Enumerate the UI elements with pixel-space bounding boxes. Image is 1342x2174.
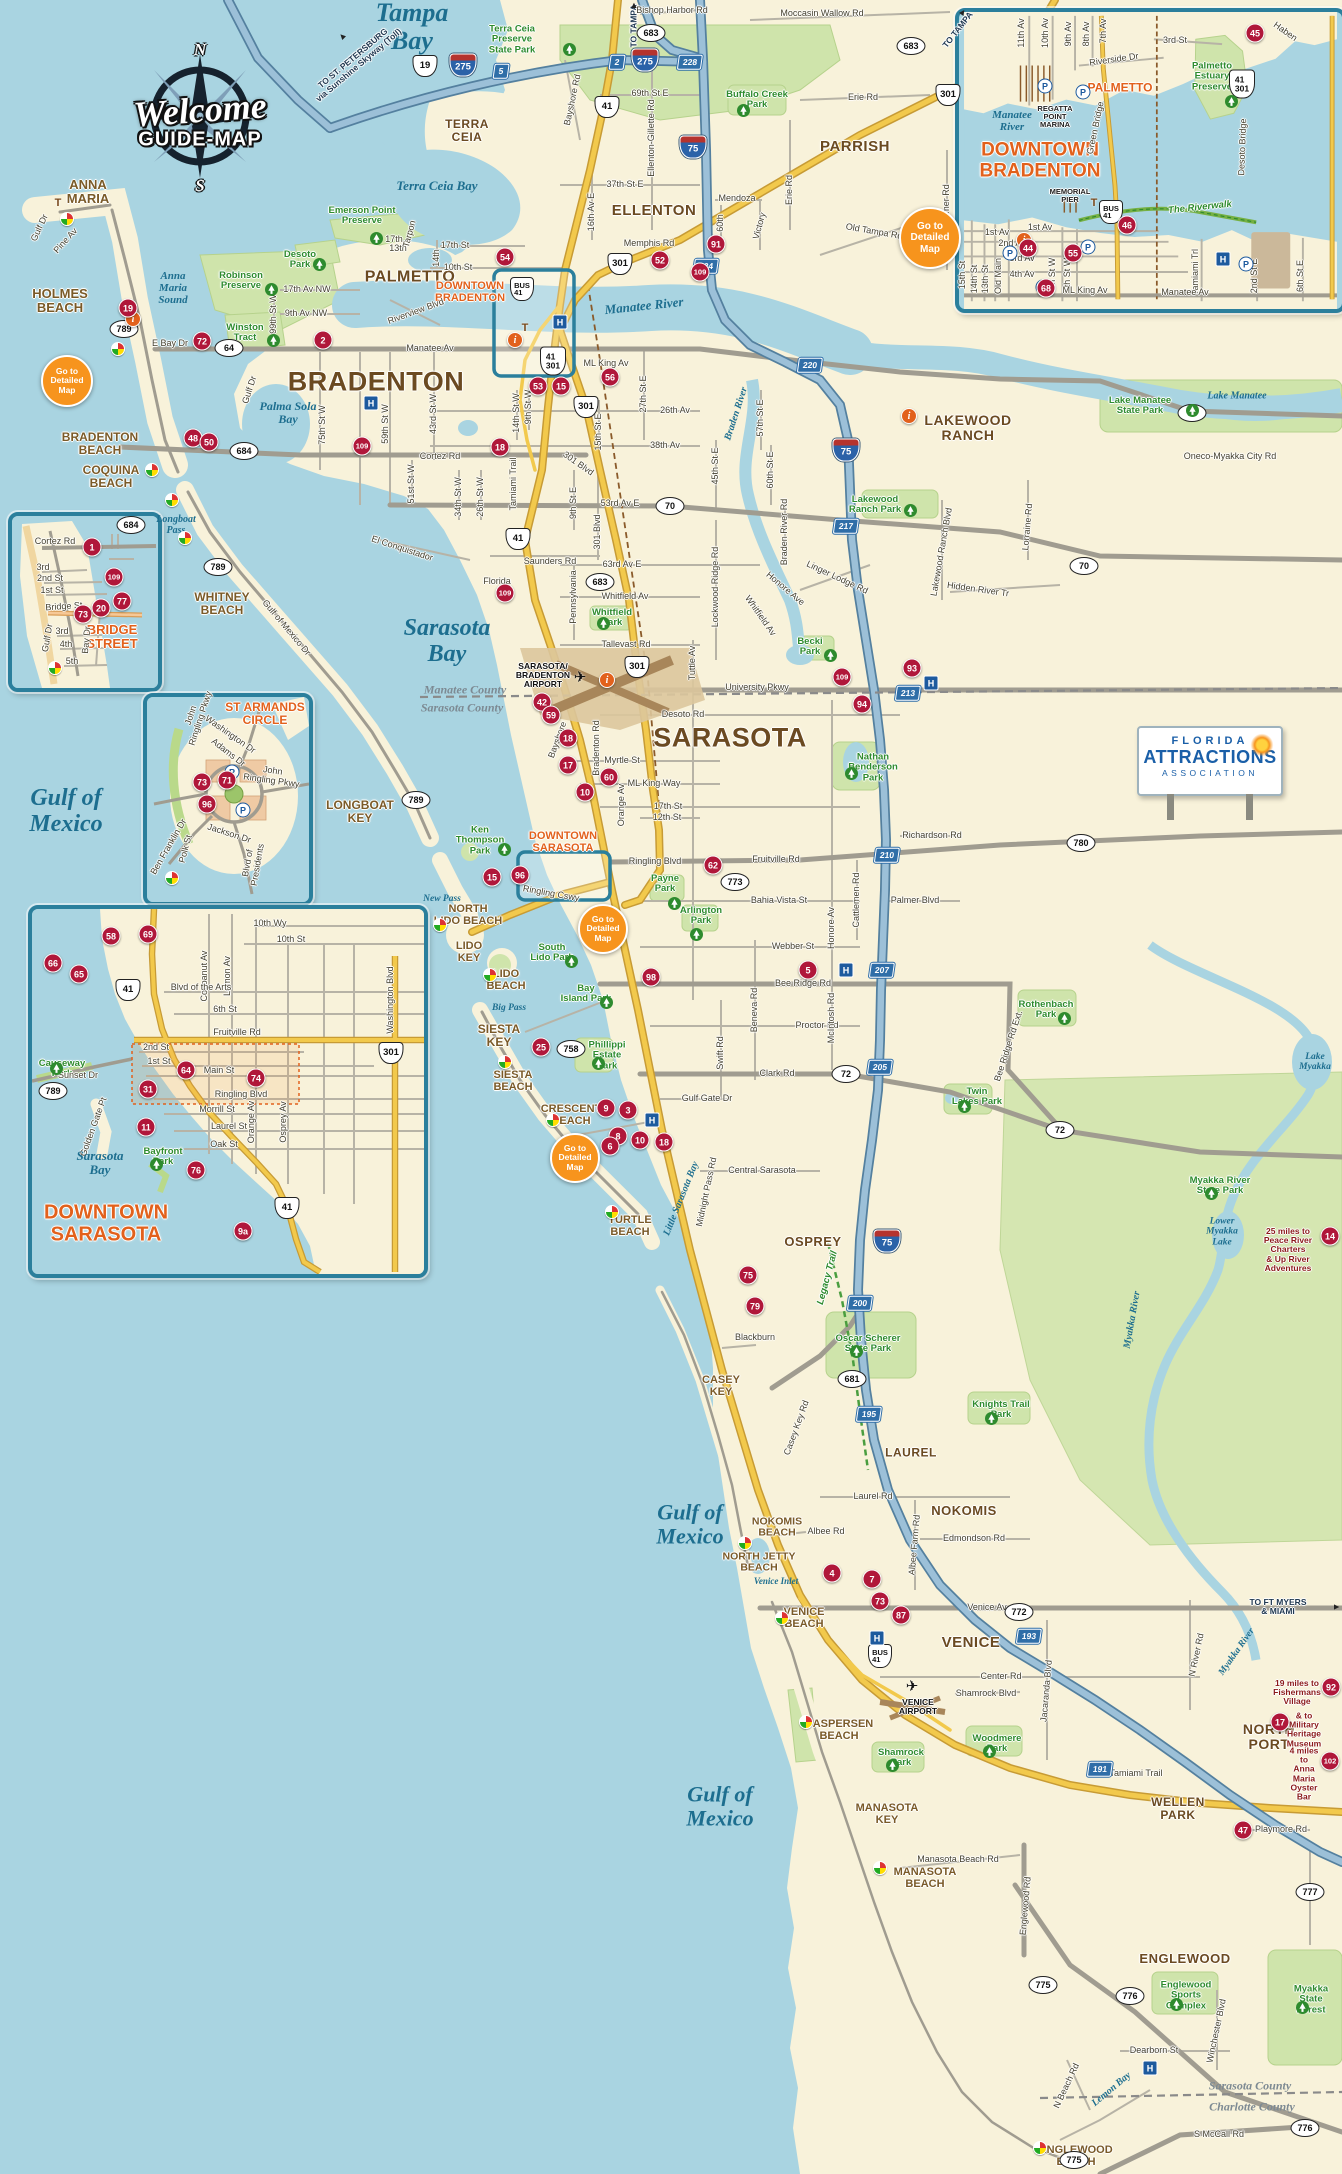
poi-marker-5: 5 (799, 961, 818, 980)
state-shield-70: 70 (656, 497, 685, 515)
poi-marker-109: 109 (691, 263, 710, 282)
poi-marker-14: 14 (1321, 1227, 1340, 1246)
poi-marker-17: 17 (559, 756, 578, 775)
poi-marker-94: 94 (853, 695, 872, 714)
state-shield-780: 780 (1067, 834, 1096, 852)
map-title-compass: N Welcome GUIDE-MAP S (120, 38, 280, 198)
hospital-icon: H (1216, 252, 1231, 267)
poi-marker-25: 25 (532, 1038, 551, 1057)
beach-ball-icon (165, 871, 179, 885)
parking-icon: P (1081, 240, 1096, 255)
beach-ball-icon (775, 1611, 789, 1625)
goto-detailed-map-button[interactable]: Go to Detailed Map (578, 904, 628, 954)
exit-shield-210: 210 (874, 848, 900, 863)
beach-ball-icon (799, 1715, 813, 1729)
state-shield-772: 772 (1005, 1603, 1034, 1621)
exit-shield-195: 195 (856, 1407, 882, 1422)
state-shield-775: 775 (1029, 1976, 1058, 1994)
poi-marker-72: 72 (193, 332, 212, 351)
poi-marker-76: 76 (187, 1161, 206, 1180)
beach-ball-icon (1033, 2141, 1047, 2155)
poi-marker-96: 96 (511, 866, 530, 885)
poi-marker-109: 109 (833, 668, 852, 687)
direction-arrow-icon: ▲ (630, 0, 639, 10)
inset-downtown-sarasota (28, 905, 428, 1278)
beach-ball-icon (433, 918, 447, 932)
interstate-shield-275: 275 (450, 54, 477, 77)
interstate-shield-75: 75 (874, 1230, 901, 1253)
state-shield-773: 773 (721, 873, 750, 891)
poi-marker-96: 96 (198, 795, 217, 814)
poi-marker-109: 109 (353, 437, 372, 456)
poi-marker-60: 60 (600, 768, 619, 787)
beach-ball-icon (546, 1113, 560, 1127)
parking-icon: P (1003, 246, 1018, 261)
parking-icon: P (1239, 257, 1254, 272)
poi-marker-87: 87 (892, 1606, 911, 1625)
poi-marker-59: 59 (542, 706, 561, 725)
poi-marker-75: 75 (739, 1266, 758, 1285)
inset-sarasota-geography (32, 909, 424, 1274)
poi-marker-73: 73 (193, 773, 212, 792)
info-icon: i (901, 408, 917, 424)
billboard-line-association: ASSOCIATION (1139, 768, 1281, 778)
state-shield-683: 683 (586, 573, 615, 591)
poi-marker-91: 91 (707, 235, 726, 254)
poi-marker-1: 1 (83, 538, 102, 557)
exit-shield-2: 2 (609, 55, 626, 70)
poi-marker-79: 79 (746, 1297, 765, 1316)
poi-marker-15: 15 (552, 377, 571, 396)
beach-ball-icon (111, 342, 125, 356)
hospital-icon: H (870, 1631, 885, 1646)
poi-marker-71: 71 (218, 771, 237, 790)
hospital-icon: H (645, 1113, 660, 1128)
state-shield-775: 775 (1060, 2151, 1089, 2169)
us2-shield-41-301: 41 301 (540, 347, 566, 376)
beach-ball-icon (483, 968, 497, 982)
poi-marker-18: 18 (491, 438, 510, 457)
inset-downtown-bradenton (955, 8, 1342, 313)
beach-ball-icon (178, 531, 192, 545)
poi-marker-62: 62 (704, 856, 723, 875)
poi-marker-10: 10 (576, 783, 595, 802)
hospital-icon: H (1143, 2061, 1158, 2076)
poi-marker-15: 15 (483, 868, 502, 887)
poi-marker-9: 9 (597, 1099, 616, 1118)
compass-south-label: S (195, 176, 204, 196)
exit-shield-205: 205 (867, 1060, 893, 1075)
poi-marker-69: 69 (139, 925, 158, 944)
poi-marker-50: 50 (200, 433, 219, 452)
state-shield-776: 776 (1116, 1987, 1145, 2005)
poi-marker-17: 17 (1271, 1713, 1290, 1732)
poi-marker-7: 7 (863, 1570, 882, 1589)
state-shield-777: 777 (1296, 1883, 1325, 1901)
parking-icon: P (1076, 85, 1091, 100)
exit-shield-191: 191 (1087, 1762, 1113, 1777)
poi-marker-52: 52 (651, 251, 670, 270)
exit-shield-220: 220 (797, 358, 823, 373)
airport-icon: ✈ (574, 668, 587, 686)
map-canvas: N Welcome GUIDE-MAP S FLORIDA ATTRACTION… (0, 0, 1342, 2174)
state-shield-789: 789 (204, 558, 233, 576)
state-shield-789: 789 (39, 1082, 68, 1100)
interstate-shield-275: 275 (632, 49, 659, 72)
poi-marker-102: 102 (1321, 1752, 1340, 1771)
poi-marker-45: 45 (1246, 24, 1265, 43)
poi-marker-11: 11 (137, 1118, 156, 1137)
poi-marker-18: 18 (655, 1133, 674, 1152)
poi-marker-68: 68 (1037, 279, 1056, 298)
interstate-shield-75: 75 (680, 136, 707, 159)
map-title-guide-map: GUIDE-MAP (138, 129, 261, 152)
exit-shield-5: 5 (493, 64, 510, 79)
direction-arrow-icon: ▲ (1332, 1603, 1342, 1612)
poi-marker-55: 55 (1064, 244, 1083, 263)
beach-ball-icon (48, 661, 62, 675)
goto-detailed-map-button[interactable]: Go to Detailed Map (899, 207, 961, 269)
state-shield-70: 70 (1070, 557, 1099, 575)
inset-bradenton-geography (959, 12, 1342, 309)
poi-marker-46: 46 (1118, 216, 1137, 235)
goto-detailed-map-button[interactable]: Go to Detailed Map (550, 1133, 600, 1183)
poi-marker-66: 66 (44, 954, 63, 973)
parking-icon: P (236, 803, 251, 818)
state-shield-684: 684 (230, 442, 259, 460)
state-shield-681: 681 (838, 1370, 867, 1388)
poi-marker-20: 20 (92, 599, 111, 618)
poi-marker-92: 92 (1322, 1678, 1341, 1697)
beach-ball-icon (145, 463, 159, 477)
beach-ball-icon (498, 1055, 512, 1069)
bus-shield-bus-41: BUS 41 (868, 1644, 892, 1668)
bus-shield-bus-41: BUS 41 (510, 277, 534, 301)
state-shield-683: 683 (637, 24, 666, 42)
exit-shield-228: 228 (677, 55, 703, 70)
interstate-shield-75: 75 (833, 439, 860, 462)
info-icon: i (507, 332, 523, 348)
poi-marker-47: 47 (1234, 1821, 1253, 1840)
trolley-icon: T (1091, 197, 1098, 209)
poi-marker-44: 44 (1019, 239, 1038, 258)
hospital-icon: H (839, 963, 854, 978)
poi-marker-73: 73 (871, 1592, 890, 1611)
exit-shield-207: 207 (869, 963, 895, 978)
hospital-icon: H (924, 676, 939, 691)
exit-shield-193: 193 (1016, 1629, 1042, 1644)
poi-marker-18: 18 (559, 729, 578, 748)
poi-marker-31: 31 (139, 1080, 158, 1099)
airport-icon: ✈ (906, 1677, 919, 1695)
poi-marker-6: 6 (601, 1137, 620, 1156)
state-shield-64: 64 (215, 339, 244, 357)
beach-ball-icon (738, 1536, 752, 1550)
florida-attractions-billboard: FLORIDA ATTRACTIONS ASSOCIATION (1137, 726, 1283, 796)
poi-marker-56: 56 (601, 368, 620, 387)
poi-marker-98: 98 (642, 968, 661, 987)
beach-ball-icon (873, 1861, 887, 1875)
poi-marker-54: 54 (496, 248, 515, 267)
poi-marker-77: 77 (113, 592, 132, 611)
poi-marker-19: 19 (119, 299, 138, 318)
poi-marker-4: 4 (823, 1564, 842, 1583)
poi-marker-2: 2 (314, 331, 333, 350)
poi-marker-93: 93 (903, 659, 922, 678)
info-icon: i (599, 672, 615, 688)
trolley-icon: T (522, 322, 529, 334)
poi-marker-74: 74 (247, 1069, 266, 1088)
poi-marker-109: 109 (496, 584, 515, 603)
poi-marker-65: 65 (70, 965, 89, 984)
poi-marker-10: 10 (631, 1131, 650, 1150)
poi-marker-73: 73 (74, 605, 93, 624)
poi-marker-53: 53 (529, 377, 548, 396)
exit-shield-213: 213 (895, 686, 921, 701)
state-shield-789: 789 (402, 791, 431, 809)
state-shield-758: 758 (557, 1040, 586, 1058)
poi-marker-3: 3 (619, 1101, 638, 1120)
state-shield-683: 683 (897, 37, 926, 55)
hospital-icon: H (364, 396, 379, 411)
parking-icon: P (1038, 79, 1053, 94)
state-shield-72: 72 (1046, 1121, 1075, 1139)
beach-ball-icon (60, 212, 74, 226)
poi-marker-64: 64 (177, 1061, 196, 1080)
trolley-icon: T (55, 197, 62, 209)
state-shield-776: 776 (1291, 2119, 1320, 2137)
poi-marker-58: 58 (102, 927, 121, 946)
compass-north-label: N (194, 40, 206, 60)
poi-marker-9a: 9a (234, 1222, 253, 1241)
beach-ball-icon (165, 493, 179, 507)
beach-ball-icon (605, 1205, 619, 1219)
exit-shield-200: 200 (847, 1296, 873, 1311)
goto-detailed-map-button[interactable]: Go to Detailed Map (41, 355, 93, 407)
state-shield-72: 72 (832, 1065, 861, 1083)
poi-marker-109: 109 (105, 568, 124, 587)
state-shield-684: 684 (117, 516, 146, 534)
sun-icon (1249, 732, 1275, 758)
exit-shield-217: 217 (833, 519, 859, 534)
hospital-icon: H (553, 315, 568, 330)
